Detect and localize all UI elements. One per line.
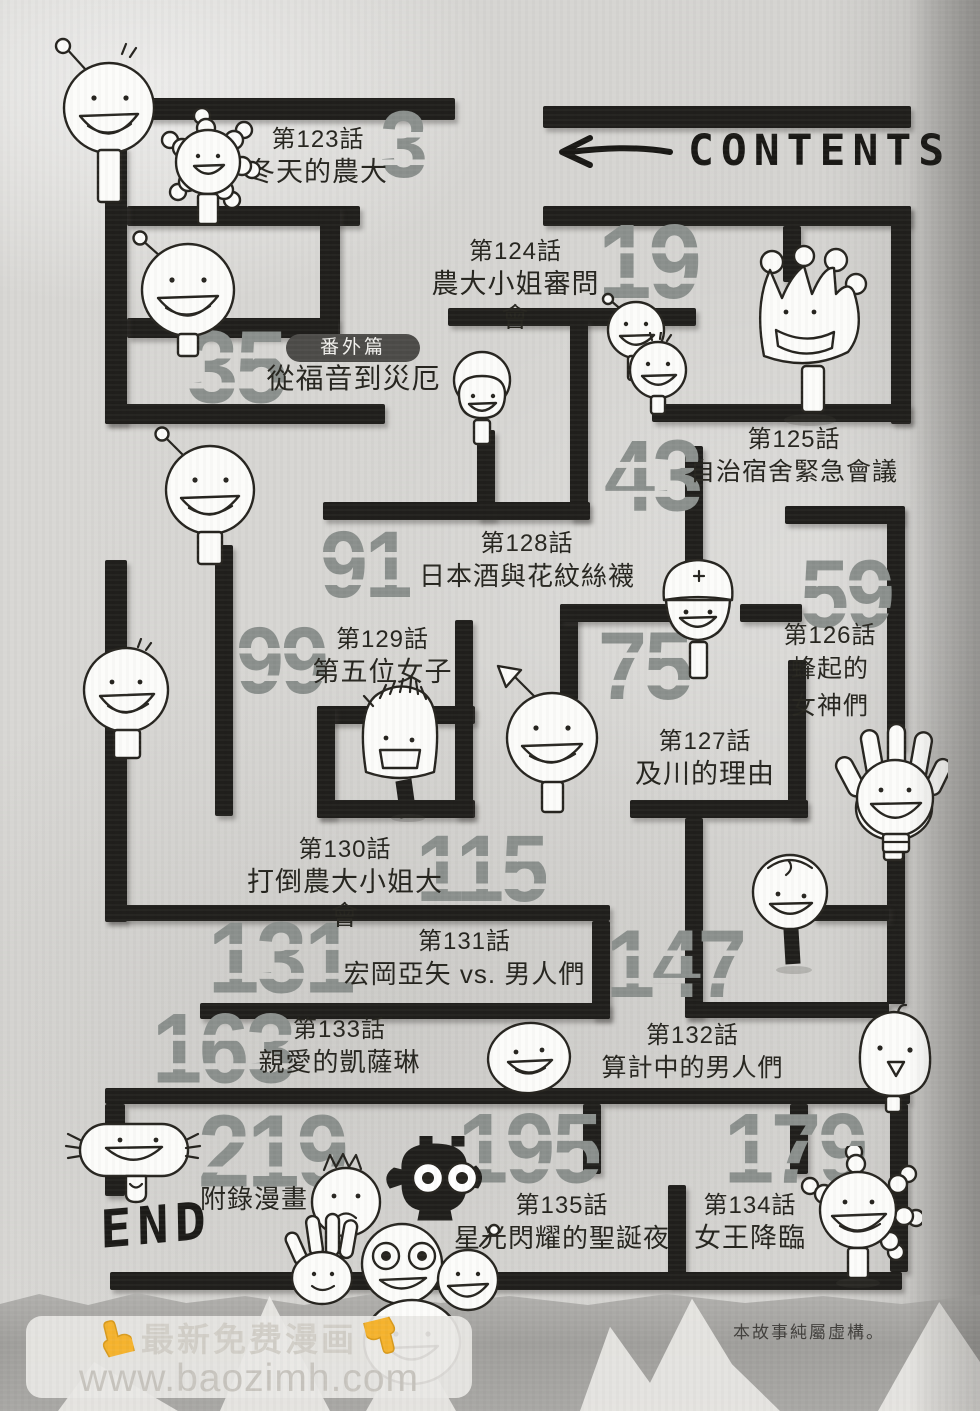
page-number: 43 [604,428,700,525]
chapter-label: 第128話 [416,528,638,559]
toc-entry-ch134: 第134話 女王降臨 [686,1190,814,1255]
maze-wall [455,620,473,818]
doodle-antenna-smiley [126,228,246,358]
disclaimer: 本故事純屬虛構。 [733,1318,885,1343]
chapter-title: 宏岡亞矢 vs. 男人們 [342,957,587,991]
watermark: 最新免费漫画 www.baozimh.com [26,1316,472,1398]
doodle-cap-smiley [650,548,746,684]
contents-header: CONTENTS [556,126,951,176]
page-number: 91 [320,520,410,611]
doodle-antenna-smiley [52,36,158,208]
doodle-smiley [76,638,176,760]
contents-title: CONTENTS [688,126,951,176]
chapter-label: 第132話 [590,1020,795,1051]
maze-wall [215,545,233,816]
toc-entry-ch132: 第132話 算計中的男人們 [590,1020,795,1085]
toc-entry-ch123: 第123話 冬天的農大 [238,124,398,189]
doodle-afro-smiley [443,350,521,446]
chapter-label: 第127話 [616,726,794,757]
chapter-title: 及川的理由 [616,757,794,791]
extra-chapter-badge: 番外篇 [286,334,420,362]
doodle-antenna-smiley [150,424,268,566]
chapter-label: 第130話 [236,834,454,865]
chapter-label: 第131話 [342,926,587,957]
maze-wall [887,840,905,1004]
chapter-title: 日本酒與花紋絲襪 [416,559,638,593]
chapter-label: 第129話 [310,624,455,655]
left-arrow-icon [556,131,674,171]
maze-wall [785,506,903,524]
chapter-title: 冬天的農大 [238,155,398,189]
toc-entry-ch128: 第128話 日本酒與花紋絲襪 [416,528,638,593]
doodle-egg-smiley [484,1018,574,1100]
doodle-crown-creature [748,238,868,434]
chapter-title: 農大小姐審問會 [418,267,613,335]
toc-entry-ch124: 第124話 農大小姐審問會 [418,236,613,335]
chapter-title: 自治宿舍緊急會議 [690,455,898,489]
chapter-title: 蜂起的 [766,651,894,688]
chapter-label: 第126話 [766,620,894,651]
doodle-gear-smiley [156,108,260,230]
chapter-title: 算計中的男人們 [590,1051,795,1085]
watermark-url: www.baozimh.com [79,1357,419,1401]
toc-entry-ch126: 第126話 蜂起的 女神們 [766,620,894,725]
toc-entry-ch127: 第127話 及川的理由 [616,726,794,791]
chapter-label: 第124話 [418,236,613,267]
toc-entry-ch133: 第133話 親愛的凱薩琳 [242,1014,437,1079]
doodle-scarf-smiley [845,758,945,854]
chapter-label: 第123話 [238,124,398,155]
toc-entry-ch131: 第131話 宏岡亞矢 vs. 男人們 [342,926,587,991]
chapter-label: 第134話 [686,1190,814,1221]
page-number: 147 [606,918,744,1011]
toc-entry-extra: 從福音到災厄 [266,362,441,396]
chapter-label: 第133話 [242,1014,437,1045]
maze-wall [543,106,911,128]
watermark-text: 最新免费漫画 [141,1313,357,1361]
maze-wall [570,318,588,520]
toc-entry-ch130: 第130話 打倒農大小姐大會 [236,834,454,933]
doodle-tuft-smiley-small [622,332,694,416]
chapter-title: 女王降臨 [686,1221,814,1255]
chapter-title: 親愛的凱薩琳 [242,1045,437,1079]
pointing-hand-icon [97,1316,135,1358]
doodle-spiky-smiley [796,1146,922,1288]
doodle-swirl-smiley [744,848,834,976]
chapter-title: 打倒農大小姐大會 [236,865,454,933]
pointing-hand-icon [363,1316,401,1358]
doodle-flag-antenna-smiley [488,658,610,814]
doodle-bread-whiskers [64,1114,202,1212]
chapter-title: 從福音到災厄 [266,362,441,396]
maze-wall [630,800,808,818]
manga-toc-page: CONTENTS 第123話 冬天的農大 3 第124話 農大小姐審問會 19 … [0,0,980,1411]
doodle-toast-head [350,674,448,822]
maze-wall [891,206,911,424]
doodle-chick [848,1004,940,1116]
